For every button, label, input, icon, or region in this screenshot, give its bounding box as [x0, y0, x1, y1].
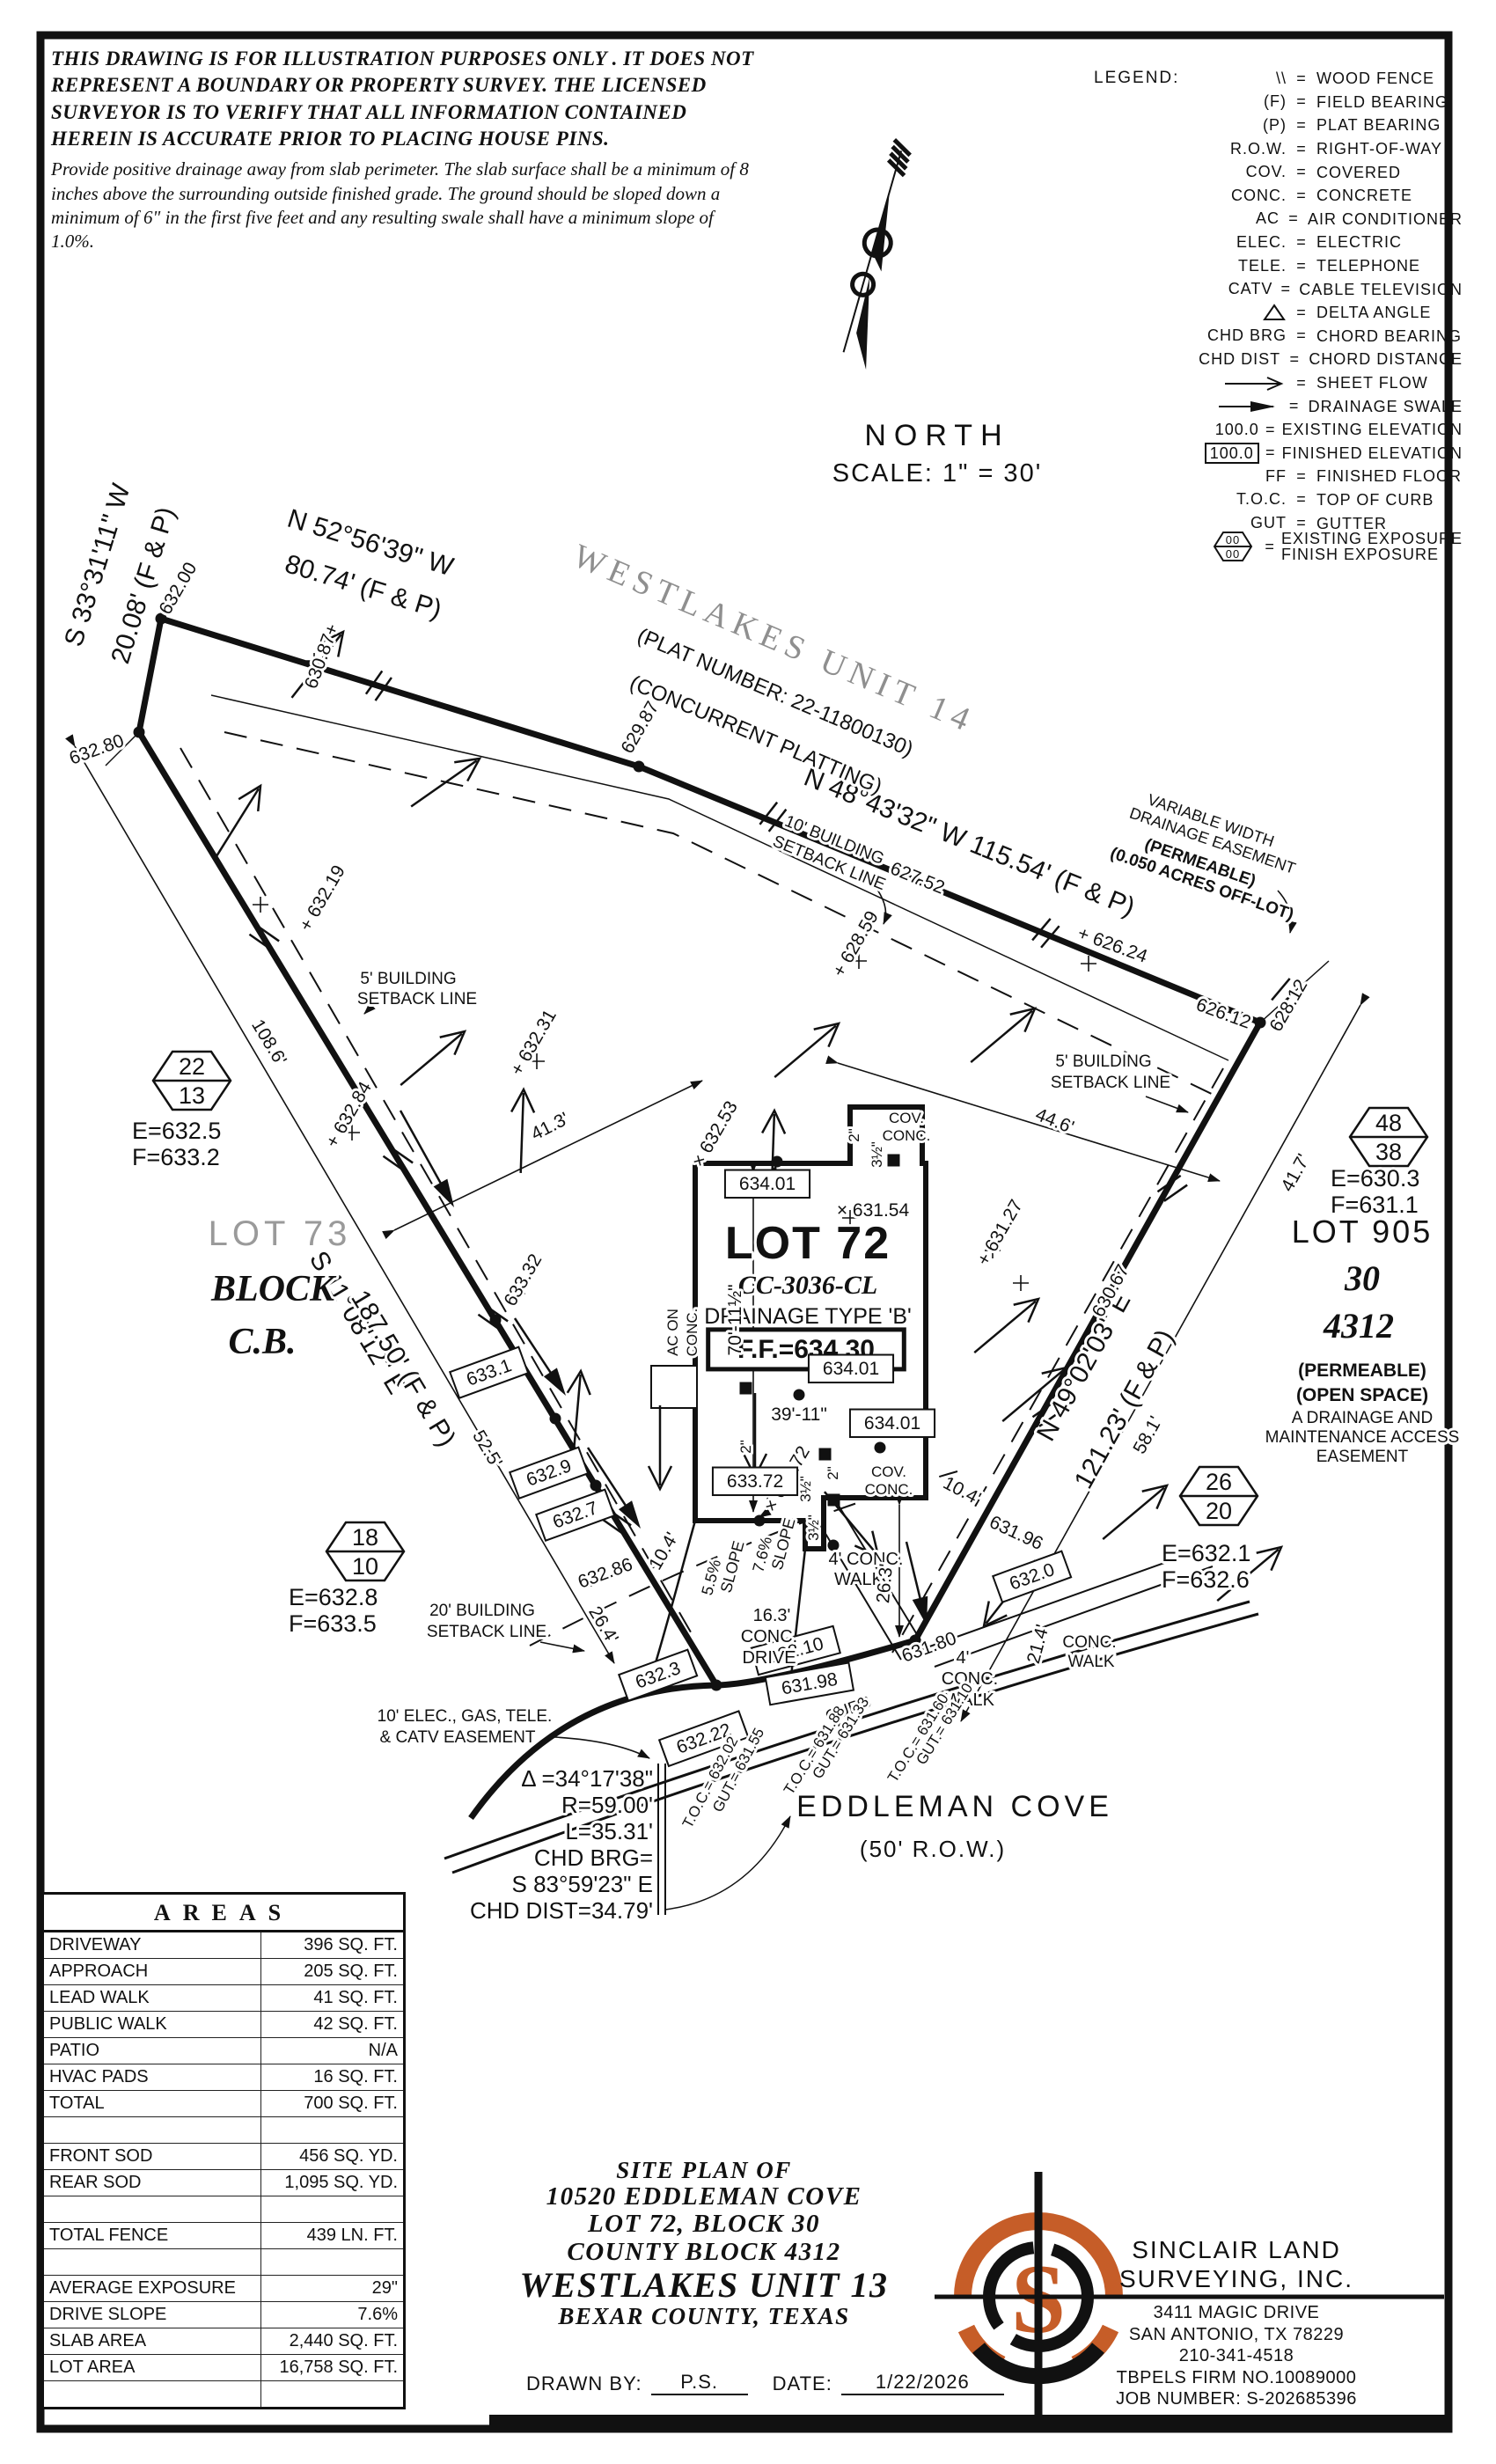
svg-text:SETBACK LINE: SETBACK LINE — [427, 1623, 546, 1641]
svg-text:Δ =34°17'38": Δ =34°17'38" — [521, 1765, 653, 1792]
porch-column — [740, 1382, 752, 1394]
areas-value: 700 SQ. FT. — [261, 2091, 404, 2117]
survey-label: LOT 905 — [1292, 1214, 1433, 1250]
drawn-by-label: DRAWN BY: — [526, 2372, 642, 2395]
areas-value: 41 SQ. FT. — [261, 1985, 404, 2012]
legend-item: CHD DIST=CHORD DISTANCE — [1172, 348, 1463, 371]
svg-text:10.4': 10.4' — [940, 1473, 984, 1509]
areas-value: 205 SQ. FT. — [261, 1959, 404, 1985]
svg-text:2": 2" — [737, 1440, 754, 1454]
svg-text:20' BUILDING: 20' BUILDING — [429, 1602, 535, 1620]
survey-label: 633.1 — [450, 1347, 528, 1398]
survey-label: CONC. — [741, 1627, 797, 1646]
legend-item: FF=FINISHED FLOOR — [1172, 465, 1463, 488]
areas-row: TOTAL700 SQ. FT. — [44, 2091, 403, 2117]
svg-text:F=631.1: F=631.1 — [1331, 1192, 1419, 1218]
areas-label: TOTAL — [44, 2091, 261, 2117]
legend-symbol: CATV — [1172, 280, 1272, 298]
survey-label: × 631.54 — [837, 1200, 910, 1221]
svg-text:S 83°59'23" E: S 83°59'23" E — [512, 1871, 653, 1897]
areas-value: 29" — [261, 2276, 404, 2302]
survey-label: 627.52 — [887, 858, 947, 898]
svg-text:+ 628.59: + 628.59 — [829, 907, 883, 980]
legend-symbol: (F) — [1172, 92, 1287, 111]
porch-column — [819, 1448, 831, 1460]
survey-label: 4' — [957, 1648, 970, 1668]
svg-text:44.6': 44.6' — [1032, 1104, 1076, 1138]
north-label: NORTH — [796, 419, 1078, 453]
survey-label: CONC. — [684, 1309, 700, 1357]
areas-row: LOT AREA16,758 SQ. FT. — [44, 2355, 403, 2381]
legend-item: ELEC.=ELECTRIC — [1172, 231, 1463, 254]
legend-item: =SHEET FLOW — [1172, 371, 1463, 395]
survey-point — [711, 1680, 722, 1691]
areas-value: 7.6% — [261, 2302, 404, 2328]
exposure-hexagon-icon: 0000 — [1172, 527, 1258, 566]
survey-label: SETBACK LINE — [427, 1623, 546, 1641]
areas-label — [44, 2196, 261, 2223]
survey-label: × 632.53 — [688, 1097, 742, 1170]
areas-value — [261, 2381, 404, 2408]
survey-label: F=633.5 — [289, 1610, 377, 1637]
areas-table: AREAS DRIVEWAY396 SQ. FT.APPROACH205 SQ.… — [41, 1892, 406, 2409]
areas-value: 456 SQ. YD. — [261, 2144, 404, 2170]
survey-label: 108.6' — [247, 1016, 290, 1068]
svg-text:187.50' (F & P): 187.50' (F & P) — [345, 1286, 461, 1452]
areas-value — [261, 2196, 404, 2223]
company-info-line: 3411 MAGIC DRIVE — [1096, 2302, 1377, 2324]
svg-text:13: 13 — [179, 1082, 205, 1109]
svg-text:2": 2" — [825, 1466, 841, 1480]
survey-label: 634.01 — [725, 1170, 810, 1199]
survey-label: (OPEN SPACE) — [1296, 1385, 1428, 1405]
areas-value: N/A — [261, 2038, 404, 2064]
areas-value: 16,758 SQ. FT. — [261, 2355, 404, 2381]
survey-label: 41.3' — [528, 1109, 572, 1145]
survey-label: + 628.59 — [829, 907, 883, 980]
svg-text:BLOCK: BLOCK — [210, 1269, 337, 1309]
disclaimer-paragraph-1: THIS DRAWING IS FOR ILLUSTRATION PURPOSE… — [51, 46, 755, 152]
legend-item: \\=WOOD FENCE — [1172, 67, 1463, 91]
sheet-flow-arrow — [1096, 1477, 1174, 1548]
legend-label: RIGHT-OF-WAY — [1316, 141, 1463, 157]
svg-text:R=59.00': R=59.00' — [561, 1792, 653, 1818]
survey-label: DRIVE — [742, 1648, 796, 1668]
survey-label: LOT 72 — [725, 1218, 891, 1269]
svg-text:10.4': 10.4' — [645, 1529, 682, 1573]
svg-text:F=632.6: F=632.6 — [1162, 1566, 1250, 1593]
sheet-flow-arrow — [767, 1015, 846, 1086]
survey-point — [875, 1442, 886, 1454]
svg-text:CONC.: CONC. — [883, 1127, 931, 1144]
company-info-line: JOB NUMBER: S-202685396 — [1096, 2388, 1377, 2410]
survey-label: BLOCK — [210, 1269, 337, 1309]
survey-label: 632.7 — [536, 1490, 614, 1541]
legend-item: T.O.C.=TOP OF CURB — [1172, 488, 1463, 512]
svg-text:00: 00 — [1226, 547, 1240, 561]
legend-item: 100.0=FINISHED ELEVATION — [1172, 442, 1463, 466]
title-block-line: LOT 72, BLOCK 30 — [480, 2211, 928, 2238]
survey-label: + 631.27 — [973, 1196, 1027, 1269]
legend-label: WOOD FENCE — [1316, 70, 1463, 86]
company-info-line: 210-341-4518 — [1096, 2345, 1377, 2367]
disclaimer-note: THIS DRAWING IS FOR ILLUSTRATION PURPOSE… — [51, 46, 755, 254]
company-name-line: SURVEYING, INC. — [1100, 2264, 1373, 2293]
areas-row — [44, 2117, 403, 2144]
company-info: 3411 MAGIC DRIVESAN ANTONIO, TX 78229210… — [1096, 2302, 1377, 2410]
survey-label: 41.7' — [1277, 1151, 1314, 1195]
survey-label: 10' ELEC., GAS, TELE. — [378, 1707, 553, 1726]
svg-text:A DRAINAGE AND: A DRAINAGE AND — [1292, 1409, 1434, 1427]
svg-text:WALK: WALK — [1067, 1653, 1114, 1671]
svg-text:41.7': 41.7' — [1277, 1151, 1314, 1195]
areas-label: HVAC PADS — [44, 2064, 261, 2091]
survey-label: 187.50' (F & P) — [345, 1286, 461, 1452]
curve-data-bracket — [658, 1764, 665, 1915]
svg-text:631.96: 631.96 — [986, 1512, 1046, 1554]
title-block: SITE PLAN OF10520 EDDLEMAN COVELOT 72, B… — [480, 2158, 928, 2329]
svg-text:26.3': 26.3' — [873, 1563, 897, 1604]
svg-text:C.B.: C.B. — [228, 1322, 296, 1362]
legend-label: EXISTING EXPOSUREFINISH EXPOSURE — [1281, 531, 1463, 562]
legend-symbol: R.O.W. — [1172, 140, 1287, 158]
svg-text:26: 26 — [1206, 1469, 1232, 1495]
survey-point — [634, 761, 645, 773]
areas-row — [44, 2249, 403, 2276]
svg-text:108.6': 108.6' — [247, 1016, 290, 1068]
survey-label: 633.32 — [500, 1250, 546, 1309]
legend-symbol: AC — [1172, 209, 1280, 228]
survey-label: Δ =34°17'38" — [521, 1765, 653, 1792]
areas-label: LEAD WALK — [44, 1985, 261, 2012]
sheet-flow-arrow — [967, 1290, 1045, 1361]
legend-label: CHORD BEARING — [1316, 328, 1463, 344]
areas-row: FRONT SOD456 SQ. YD. — [44, 2144, 403, 2170]
areas-row: APPROACH205 SQ. FT. — [44, 1959, 403, 1985]
svg-text:3½": 3½" — [869, 1141, 885, 1168]
survey-label: 2" — [737, 1440, 754, 1454]
svg-text:627.52: 627.52 — [887, 858, 947, 898]
company-name-line: SINCLAIR LAND — [1100, 2235, 1373, 2264]
svg-text:634.01: 634.01 — [864, 1413, 920, 1434]
survey-point — [550, 1413, 561, 1425]
svg-text:2": 2" — [846, 1128, 862, 1142]
survey-label: 3½" — [805, 1514, 822, 1541]
svg-text:CHD BRG=: CHD BRG= — [534, 1844, 653, 1871]
areas-row: AVERAGE EXPOSURE29" — [44, 2276, 403, 2302]
survey-label: E=632.8 — [289, 1584, 378, 1610]
company-name: SINCLAIR LANDSURVEYING, INC. — [1100, 2235, 1373, 2293]
survey-label: 633.72 — [713, 1468, 797, 1496]
areas-label — [44, 2117, 261, 2144]
survey-label: SETBACK LINE — [1051, 1074, 1170, 1092]
survey-label: 10.4' — [940, 1473, 984, 1509]
svg-text:LOT 73: LOT 73 — [209, 1214, 352, 1253]
svg-text:10: 10 — [352, 1553, 378, 1580]
survey-label: AC ON — [664, 1309, 681, 1356]
svg-text:(PERMEABLE): (PERMEABLE) — [1298, 1360, 1426, 1381]
survey-label: 632.9 — [510, 1448, 588, 1499]
areas-row: TOTAL FENCE439 LN. FT. — [44, 2223, 403, 2249]
drawn-by-row: DRAWN BY: P.S. DATE: 1/22/2026 — [526, 2371, 1019, 2395]
survey-label: CONC. — [1062, 1633, 1116, 1652]
svg-text:& CATV EASEMENT: & CATV EASEMENT — [379, 1728, 535, 1747]
svg-text:18: 18 — [352, 1524, 378, 1551]
survey-label: S 83°59'23" E — [512, 1871, 653, 1897]
site-plan-sheet: S 2213181026204838S 33°31'11" W20.08' (F… — [0, 0, 1496, 2464]
areas-row: PATION/A — [44, 2038, 403, 2064]
areas-label: PATIO — [44, 2038, 261, 2064]
svg-text:634.01: 634.01 — [739, 1174, 796, 1194]
survey-label: L=35.31' — [565, 1818, 653, 1844]
areas-value — [261, 2117, 404, 2144]
survey-label: 10.4' — [645, 1529, 682, 1573]
svg-text:× 632.53: × 632.53 — [688, 1097, 742, 1170]
svg-text:4': 4' — [957, 1648, 970, 1668]
svg-text:626.12: 626.12 — [1193, 994, 1253, 1033]
survey-label: R=59.00' — [561, 1792, 653, 1818]
svg-text:CONC.: CONC. — [684, 1309, 700, 1357]
legend-symbol: COV. — [1172, 163, 1287, 181]
legend-symbol: T.O.C. — [1172, 490, 1287, 509]
survey-point — [1255, 1017, 1266, 1029]
legend-label: CABLE TELEVISION — [1299, 282, 1463, 297]
ac-pad — [651, 1366, 697, 1408]
survey-label: F=631.1 — [1331, 1192, 1419, 1218]
areas-table-title: AREAS — [44, 1895, 403, 1932]
survey-label: 626.12 — [1193, 994, 1253, 1033]
survey-label: EDDLEMAN COVE — [796, 1790, 1113, 1823]
legend-symbol: ELEC. — [1172, 233, 1287, 252]
survey-label: 3½" — [797, 1476, 814, 1502]
legend-item: TELE.=TELEPHONE — [1172, 254, 1463, 278]
finished-elevation-icon: 100.0 — [1172, 443, 1259, 464]
survey-label: 26.3' — [873, 1563, 897, 1604]
date-label: DATE: — [773, 2372, 832, 2395]
survey-label: F=633.2 — [132, 1144, 220, 1170]
svg-text:× 631.54: × 631.54 — [837, 1200, 910, 1221]
areas-value: 396 SQ. FT. — [261, 1932, 404, 1959]
svg-text:38: 38 — [1375, 1139, 1402, 1165]
survey-label: (50' R.O.W.) — [860, 1836, 1006, 1862]
svg-text:4312: 4312 — [1323, 1306, 1394, 1346]
svg-text:+ 632.31: + 632.31 — [507, 1006, 561, 1079]
legend-label: SHEET FLOW — [1316, 375, 1463, 391]
sheet-flow-arrow — [649, 1405, 671, 1489]
survey-label: E=630.3 — [1331, 1165, 1419, 1192]
svg-text:5' BUILDING: 5' BUILDING — [1055, 1052, 1151, 1071]
legend-symbol: (P) — [1172, 116, 1287, 135]
legend-symbol: CONC. — [1172, 187, 1287, 205]
areas-row: HVAC PADS16 SQ. FT. — [44, 2064, 403, 2091]
survey-label: 632.80 — [67, 730, 127, 769]
survey-label: 629.87 — [617, 698, 663, 757]
legend-item: (F)=FIELD BEARING — [1172, 91, 1463, 114]
svg-text:E=632.1: E=632.1 — [1162, 1540, 1250, 1566]
areas-value: 439 LN. FT. — [261, 2223, 404, 2249]
svg-text:CONC.: CONC. — [741, 1627, 797, 1646]
survey-label: 634.01 — [809, 1355, 893, 1383]
areas-label — [44, 2249, 261, 2276]
svg-text:630.87+: 630.87+ — [301, 621, 343, 692]
svg-text:629.87: 629.87 — [617, 698, 663, 757]
exposure-marker: 1810 — [326, 1522, 404, 1580]
svg-text:632.86: 632.86 — [576, 1554, 635, 1593]
legend-item: COV.=COVERED — [1172, 160, 1463, 184]
legend-title: LEGEND: — [1094, 69, 1179, 88]
svg-text:70'-11½": 70'-11½" — [725, 1284, 745, 1355]
legend-item: CONC.=CONCRETE — [1172, 184, 1463, 208]
areas-value — [261, 2249, 404, 2276]
porch-column — [888, 1155, 899, 1166]
legend-symbol: TELE. — [1172, 257, 1287, 275]
svg-text:F=633.2: F=633.2 — [132, 1144, 220, 1170]
areas-value: 16 SQ. FT. — [261, 2064, 404, 2091]
setback-5ft-west — [180, 748, 693, 1637]
exposure-marker: 4838 — [1350, 1108, 1427, 1166]
survey-label: 5' BUILDING — [1055, 1052, 1151, 1071]
legend: \\=WOOD FENCE(F)=FIELD BEARING(P)=PLAT B… — [1172, 67, 1463, 558]
legend-item: 100.0=EXISTING ELEVATION — [1172, 418, 1463, 442]
svg-text:3½": 3½" — [805, 1514, 822, 1541]
legend-symbol: 100.0 — [1172, 421, 1259, 439]
survey-label: 634.01 — [850, 1410, 935, 1438]
exposure-marker: 2213 — [153, 1052, 231, 1110]
svg-text:10' ELEC., GAS, TELE.: 10' ELEC., GAS, TELE. — [378, 1707, 553, 1726]
survey-label: WESTLAKES UNIT 14 — [568, 538, 980, 741]
svg-text:00: 00 — [1226, 533, 1240, 546]
survey-label: 5' BUILDING — [360, 970, 456, 988]
north-arrow-icon — [831, 140, 929, 370]
svg-text:5' BUILDING: 5' BUILDING — [360, 970, 456, 988]
svg-text:+ 632.19: + 632.19 — [296, 862, 349, 935]
spot-elevation-mark — [1081, 956, 1096, 972]
svg-text:E=630.3: E=630.3 — [1331, 1165, 1419, 1192]
title-block-line: BEXAR COUNTY, TEXAS — [480, 2304, 928, 2329]
survey-label: COV. — [871, 1463, 906, 1480]
survey-label: CONC. — [865, 1481, 913, 1498]
survey-point — [794, 1390, 805, 1401]
svg-text:3½": 3½" — [797, 1476, 814, 1502]
survey-label: EASEMENT — [1316, 1448, 1409, 1466]
company-info-line: SAN ANTONIO, TX 78229 — [1096, 2324, 1377, 2346]
svg-text:628.12: 628.12 — [1265, 976, 1311, 1035]
survey-label: 628.12 — [1265, 976, 1311, 1035]
survey-label: 632.86 — [576, 1554, 635, 1593]
areas-label: APPROACH — [44, 1959, 261, 1985]
title-block-line: SITE PLAN OF — [480, 2158, 928, 2183]
svg-text:CONC.: CONC. — [1062, 1633, 1116, 1652]
dim-41.3 — [394, 1081, 702, 1230]
svg-text:39'-11": 39'-11" — [771, 1404, 827, 1425]
sheet-flow-arrow — [207, 780, 270, 862]
survey-label: MAINTENANCE ACCESS — [1265, 1428, 1460, 1447]
svg-text:634.01: 634.01 — [823, 1359, 879, 1379]
survey-label: SETBACK LINE — [357, 990, 477, 1008]
legend-item: CHD BRG=CHORD BEARING — [1172, 325, 1463, 348]
legend-item: (P)=PLAT BEARING — [1172, 114, 1463, 137]
legend-label: EXISTING ELEVATION — [1282, 422, 1463, 437]
survey-label: 2" — [846, 1128, 862, 1142]
svg-text:AC ON: AC ON — [664, 1309, 681, 1356]
svg-text:30: 30 — [1344, 1258, 1380, 1298]
sheet-flow-arrow — [393, 1023, 472, 1094]
legend-label: FINISHED FLOOR — [1316, 468, 1463, 484]
areas-value: 42 SQ. FT. — [261, 2012, 404, 2038]
svg-text:41.3': 41.3' — [528, 1109, 572, 1145]
areas-label: SLAB AREA — [44, 2328, 261, 2355]
company-info-line: TBPELS FIRM NO.10089000 — [1096, 2367, 1377, 2389]
drawn-by-value: P.S. — [651, 2371, 748, 2395]
survey-label: 3½" — [869, 1141, 885, 1168]
svg-text:20: 20 — [1206, 1498, 1232, 1524]
survey-label: 70'-11½" — [725, 1284, 745, 1355]
survey-label: + 632.19 — [296, 862, 349, 935]
legend-label: TOP OF CURB — [1316, 492, 1463, 508]
svg-text:633.72: 633.72 — [727, 1471, 783, 1492]
svg-text:DRIVE: DRIVE — [742, 1648, 796, 1668]
survey-point — [490, 1315, 502, 1326]
survey-label: CHD BRG= — [534, 1844, 653, 1871]
survey-point — [754, 1515, 766, 1527]
survey-label: E=632.5 — [132, 1118, 221, 1144]
survey-label: COV. — [889, 1110, 924, 1126]
title-block-line: COUNTY BLOCK 4312 — [480, 2239, 928, 2266]
legend-label: FIELD BEARING — [1316, 94, 1463, 110]
survey-label: 16.3' — [753, 1606, 791, 1625]
legend-label: FINISHED ELEVATION — [1282, 445, 1463, 461]
sheet-flow-arrow — [964, 1000, 1042, 1071]
svg-text:+ 631.27: + 631.27 — [973, 1196, 1027, 1269]
title-block-line: 10520 EDDLEMAN COVE — [480, 2183, 928, 2211]
legend-label: AIR CONDITIONER — [1308, 211, 1463, 227]
survey-label: 30 — [1344, 1258, 1380, 1298]
legend-label: PLAT BEARING — [1316, 117, 1463, 133]
survey-label: 26.4' — [584, 1602, 622, 1646]
legend-label: CONCRETE — [1316, 187, 1463, 203]
survey-label: 631.96 — [986, 1512, 1046, 1554]
svg-text:52.5': 52.5' — [468, 1426, 506, 1470]
survey-label: LOT 73 — [209, 1214, 352, 1253]
survey-point — [156, 613, 167, 625]
sheet-flow-icon — [1172, 374, 1287, 392]
svg-text:(50' R.O.W.): (50' R.O.W.) — [860, 1836, 1006, 1862]
svg-text:F=633.5: F=633.5 — [289, 1610, 377, 1637]
exposure-marker: 2620 — [1180, 1467, 1258, 1525]
survey-point — [772, 1156, 783, 1168]
svg-text:E=632.5: E=632.5 — [132, 1118, 221, 1144]
areas-label: DRIVEWAY — [44, 1932, 261, 1959]
areas-label: AVERAGE EXPOSURE — [44, 2276, 261, 2302]
survey-point — [590, 1480, 602, 1492]
legend-label: GUTTER — [1316, 516, 1463, 532]
svg-text:SETBACK LINE: SETBACK LINE — [357, 990, 477, 1008]
svg-text:MAINTENANCE ACCESS: MAINTENANCE ACCESS — [1265, 1428, 1460, 1447]
survey-label: 2" — [825, 1466, 841, 1480]
setback-10ft — [224, 732, 1219, 1097]
svg-text:26.4': 26.4' — [584, 1602, 622, 1646]
delta-angle-icon — [1172, 303, 1287, 322]
sheet-flow-arrow — [405, 749, 487, 816]
svg-text:633.32: 633.32 — [500, 1250, 546, 1309]
svg-text:632.80: 632.80 — [67, 730, 127, 769]
svg-text:WESTLAKES UNIT 14: WESTLAKES UNIT 14 — [568, 538, 980, 741]
areas-row: REAR SOD1,095 SQ. YD. — [44, 2170, 403, 2196]
legend-item: =DELTA ANGLE — [1172, 301, 1463, 325]
legend-item: AC=AIR CONDITIONER — [1172, 208, 1463, 231]
svg-text:SETBACK LINE: SETBACK LINE — [1051, 1074, 1170, 1092]
survey-label: CC-3036-CL — [738, 1271, 877, 1300]
